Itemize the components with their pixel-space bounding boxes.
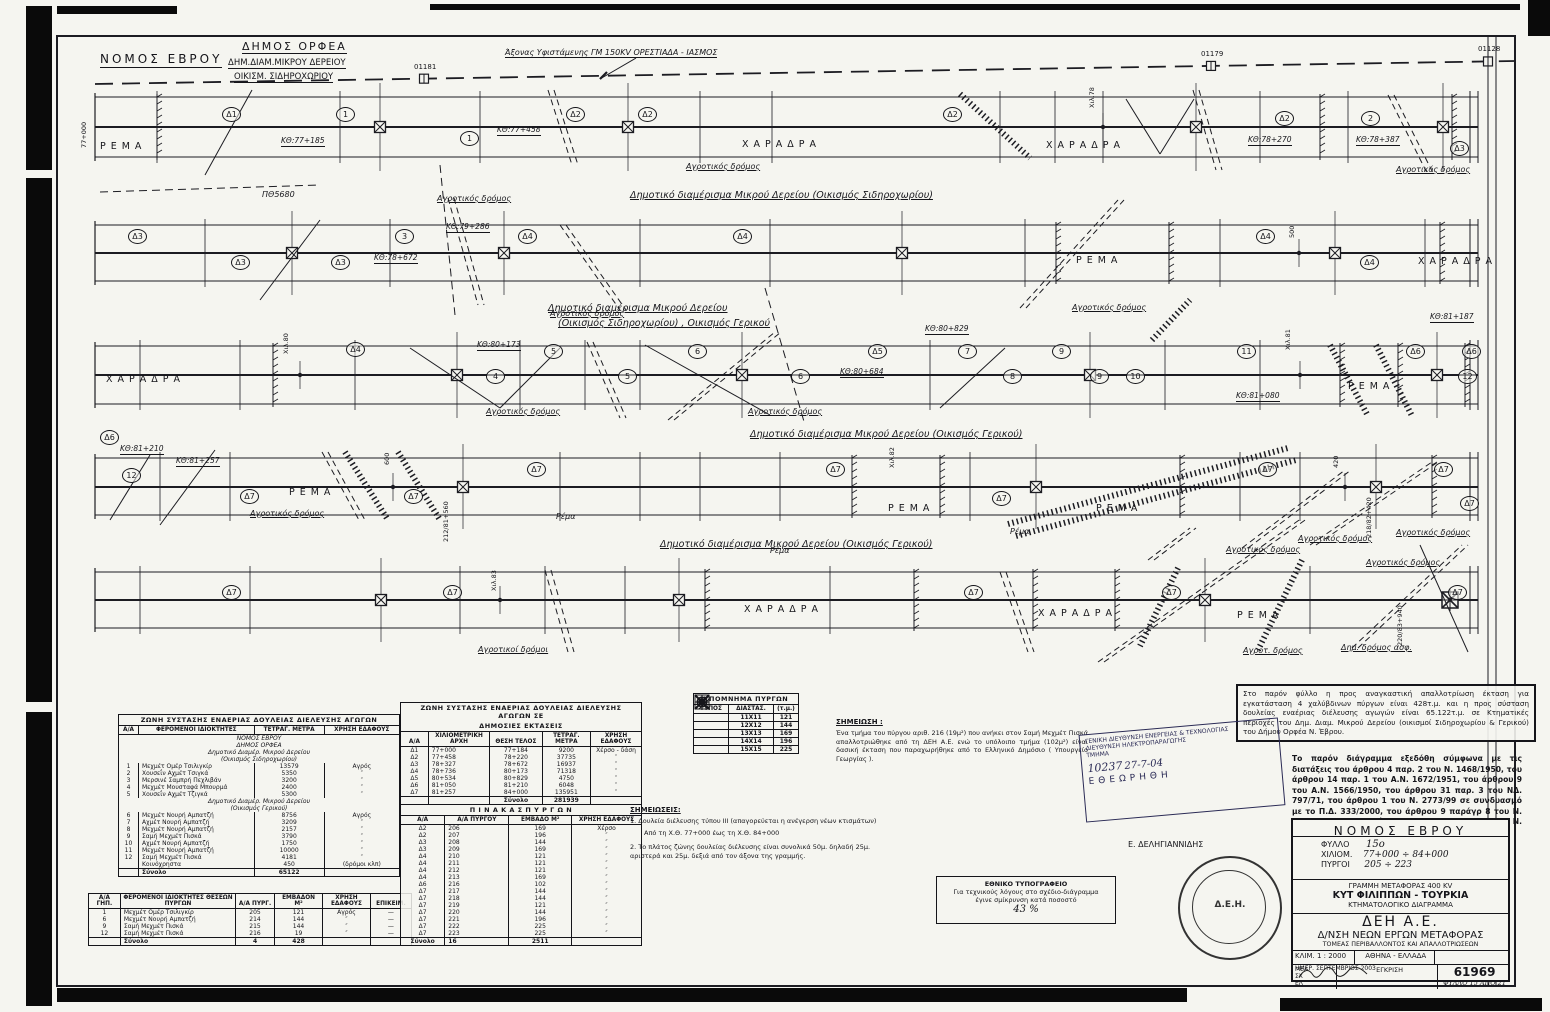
legend-area: 225	[774, 746, 799, 754]
table-cell: Δ3	[401, 761, 428, 768]
table-cell: 77+184	[490, 747, 542, 755]
table-cell: 221	[445, 916, 509, 923]
section-header-cell: (Οικισμός Σιδηροχωρίου)	[119, 756, 399, 763]
table-row: Δ4212121″	[401, 867, 641, 874]
tower-number-label: 1	[336, 107, 355, 122]
table-cell: 16	[445, 938, 509, 946]
printing-percent: 43 %	[937, 904, 1115, 915]
tower-number-label: 6	[688, 344, 707, 359]
table-cell: Σύνολο	[401, 938, 445, 946]
table-cell: 210	[445, 853, 509, 860]
table-cell: ″	[591, 775, 641, 782]
column-header: Α/Α	[119, 726, 139, 735]
table-cell: ″	[324, 826, 399, 833]
table-row: 5Χουσεΐν Αχμέτ Τζιγκά5300″	[119, 791, 399, 798]
legend-area: 121	[774, 714, 799, 722]
table-row: (Οικισμός Σιδηροχωρίου)	[119, 756, 399, 763]
tower-number-label: 4	[486, 369, 505, 384]
table-cell: 213	[445, 874, 509, 881]
note-item-2: 2. Το πλάτος ζώνης δουλείας διέλευσης εί…	[630, 843, 902, 861]
legend-row: 14X14196	[694, 738, 798, 746]
table-cell: Σαμή Μεχμέτ Πισκά	[120, 930, 235, 938]
station-label: ΚΘ:79+286	[446, 222, 490, 233]
printing-office-box: ΕΘΝΙΚΟ ΤΥΠΟΓΡΑΦΕΙΟ Για τεχνικούς λόγους …	[936, 876, 1116, 924]
settlement-title: ΟΙΚΙΣΜ. ΣΙΔΗΡΟΧΩΡΙΟΥ	[234, 72, 333, 83]
table-cell: Αγρός	[324, 812, 399, 819]
tower-number-label: Δ4	[346, 342, 365, 357]
table-row: Δ4213169″	[401, 874, 641, 881]
table-cell: Μεχμέτ Μουσταφά Μπουρμά	[139, 784, 255, 791]
stamp-date: 27-7-04	[1124, 758, 1163, 772]
tower-number-label: Δ7	[1448, 585, 1467, 600]
table-cell: 71318	[542, 768, 590, 775]
tower-number-label: Δ7	[222, 585, 241, 600]
table-row: 1Μεχμέτ Ομέρ Τσιλιγκίρ13579Αγρός	[119, 763, 399, 770]
table-cell: Δ7	[401, 902, 445, 909]
table-cell: Μεχμέτ Νουρή Αμπατζή	[120, 916, 235, 923]
table-cell: ″	[324, 819, 399, 826]
table-cell: Δ4	[401, 853, 445, 860]
table-row: Δ7220144″	[401, 909, 641, 916]
table-cell: ″	[324, 854, 399, 861]
table-cell: ″	[591, 782, 641, 789]
table-cell: 211	[445, 860, 509, 867]
column-header: Α/Α	[401, 732, 428, 747]
table-cell	[119, 861, 139, 869]
table-cell: 144	[509, 909, 572, 916]
table-cell: Δ2	[401, 825, 445, 833]
table-row: 4Μεχμέτ Μουσταφά Μπουρμά2400″	[119, 784, 399, 791]
tb-sheet-value: 15ο	[1366, 839, 1385, 850]
legend-dim: 14X14	[729, 738, 774, 746]
table-cell: 208	[445, 839, 509, 846]
table-row: 9Σαμή Μεχμέτ Πισκά215144″—	[89, 923, 411, 930]
table-row: 10Αχμέτ Νουρή Αμπατζή1750″	[119, 840, 399, 847]
note-item-1: 1. Δουλεία διέλευσης τύπου ΙΙΙ (απαγορεύ…	[630, 817, 902, 826]
table-cell: 11	[119, 847, 139, 854]
table-row: Δ378+32778+67216937″	[401, 761, 641, 768]
table-row: Σύνολο65122	[119, 869, 399, 877]
table-cell: 196	[509, 832, 572, 839]
column-header: ΤΕΤΡΑΓ. ΜΕΤΡΑ	[542, 732, 590, 747]
tb-towers-label: ΠΥΡΓΟΙ	[1321, 860, 1350, 869]
tower-number-label: 5	[618, 369, 637, 384]
station-label: ΚΘ:80+684	[840, 367, 884, 378]
table-row: Δ7219121″	[401, 902, 641, 909]
tower-number-label: Δ4	[518, 229, 537, 244]
table-cell: (δρόμοι κλπ)	[324, 861, 399, 869]
table-cell: 214	[236, 916, 275, 923]
table-cell: Αγρός	[323, 909, 371, 917]
tower-number-label: 7	[958, 344, 977, 359]
table-cell: 80+173	[490, 768, 542, 775]
column-header: ΧΡΗΣΗ ΕΔΑΦΟΥΣ	[591, 732, 641, 747]
tower-number-label: 10	[1126, 369, 1145, 384]
table-row: 1Μεχμέτ Ομέρ Τσιλιγκίρ205121Αγρός—	[89, 909, 411, 917]
approval-signature	[1293, 965, 1383, 981]
table-row: Δημοτικό Διαμέρ. Μικρού Δερείου	[119, 749, 399, 756]
table-cell: ″	[572, 895, 641, 902]
table-row: Δ7222225″	[401, 923, 641, 930]
tower-number-label: Δ3	[231, 255, 250, 270]
notes-block: ΣΗΜΕΙΩΣΕΙΣ: 1. Δουλεία διέλευσης τύπου Ι…	[630, 806, 902, 861]
km-marker-label: 420	[1332, 456, 1340, 468]
table-row: ΔΗΜΟΣ ΟΡΦΕΑ	[119, 742, 399, 749]
table-cell: 3209	[254, 819, 324, 826]
office-stamp: ΓΕΝΙΚΗ ΔΙΕΥΘΥΝΣΗ ΕΝΕΡΓΕΙΑΣ & ΤΕΧΝΟΛΟΓΙΑΣ…	[1079, 717, 1286, 822]
table-cell: 5300	[254, 791, 324, 798]
legend-area: 169	[774, 730, 799, 738]
table-cell: 121	[274, 909, 322, 917]
tower-type-icon	[694, 694, 710, 710]
tower-number-label: 12	[122, 468, 141, 483]
tower-number-label: 9	[1052, 344, 1071, 359]
area-header: Δημοτικό διαμέρισμα Μικρού Δερείου (Οικι…	[660, 539, 933, 550]
tower-number-label: 1	[460, 131, 479, 146]
road-label: Αγροτικός δρόμος	[486, 407, 560, 416]
table-cell	[572, 938, 641, 946]
table-cell: Δ1	[401, 747, 428, 755]
tb-division: Δ/ΝΣΗ ΝΕΩΝ ΕΡΓΩΝ ΜΕΤΑΦΟΡΑΣ	[1293, 930, 1508, 941]
table-cell: Σύνολο	[120, 938, 235, 946]
table-cell	[591, 797, 641, 805]
table-cell: ″	[572, 888, 641, 895]
table-cell	[401, 797, 428, 805]
note-item-1b: Από τη Χ.Θ. 77+000 έως τη Χ.Θ. 84+000	[644, 829, 902, 838]
feature-label: Ρέμα	[1010, 527, 1030, 536]
table-cell: Σαμή Μεχμέτ Πισκά	[139, 833, 255, 840]
tower-number-label: Δ7	[404, 489, 423, 504]
km-marker-label: Χιλ.81	[1284, 329, 1292, 350]
tower-number-label: 12	[1458, 369, 1477, 384]
area-header: Δημοτικό διαμέρισμα Μικρού Δερείου (Οικι…	[750, 429, 1023, 440]
terrain-label: ΡΕΜΑ	[1096, 503, 1142, 514]
table-row: Δ2206169Χέρσο	[401, 825, 641, 833]
tb-scale-label: ΚΛΙΜ.	[1295, 952, 1315, 960]
tower-number-label: Δ2	[566, 107, 585, 122]
table-cell: ″	[591, 789, 641, 797]
table-cell: 169	[509, 874, 572, 881]
tb-company: ΔΕΗ Α.Ε.	[1293, 914, 1508, 930]
table-row: Δ478+73680+17371318″	[401, 768, 641, 775]
table-cell: 6	[89, 916, 120, 923]
table-cell: 281939	[542, 797, 590, 805]
road-label: Αγροτικός δρόμος	[1298, 534, 1372, 543]
table-cell: 225	[509, 930, 572, 938]
tower-number-label: 3	[395, 229, 414, 244]
station-label: ΚΘ:81+187	[1430, 312, 1474, 323]
existing-line-label: Άξονας Υφιστάμενης ΓΜ 150KV ΟΡΕΣΤΙΑΔΑ - …	[505, 48, 717, 58]
km-marker-label: 600	[383, 453, 391, 465]
table-cell: 196	[509, 916, 572, 923]
table-cell: 6048	[542, 782, 590, 789]
tb-km-value: 77+000 ÷ 84+000	[1363, 850, 1449, 860]
table-row: Κοινόχρηστα450(δρόμοι κλπ)	[119, 861, 399, 869]
station-label: ΚΘ:77+185	[281, 136, 325, 147]
table-cell: 220	[445, 909, 509, 916]
area-header: Δημοτικό διαμέρισμα Μικρού Δερείου	[548, 303, 728, 314]
table-cell: 5350	[254, 770, 324, 777]
table-cell: 212	[445, 867, 509, 874]
table-cell: Δ2	[401, 754, 428, 761]
table-cell: Χουσεΐν Αχμέτ Τσιγκά	[139, 770, 255, 777]
column-header: ΦΕΡΟΜΕΝΟΙ ΙΔΙΟΚΤΗΤΕΣ	[139, 726, 255, 735]
table-cell: 2511	[509, 938, 572, 946]
table-cell: ″	[572, 916, 641, 923]
tower-number-label: Δ6	[100, 430, 119, 445]
table-cell: 78+672	[490, 761, 542, 768]
terrain-label: ΧΑΡΑΔΡΑ	[1418, 256, 1497, 267]
terrain-label: ΡΕΜΑ	[1237, 610, 1283, 621]
table-cell: ″	[591, 768, 641, 775]
station-label: ΚΘ:80+829	[925, 324, 969, 335]
legend-area: 196	[774, 738, 799, 746]
table-row: Σύνολο4428	[89, 938, 411, 946]
table-cell: ″	[572, 923, 641, 930]
area-header: (Οικισμός Σιδηροχωρίου) , Οικισμός Γερικ…	[558, 318, 770, 329]
terrain-label: ΡΕΜΑ	[888, 503, 934, 514]
printing-line2: Για τεχνικούς λόγους στο σχέδιο-διάγραμμ…	[937, 888, 1115, 896]
table-cell: Δ2	[401, 832, 445, 839]
feature-label: ΠΘ5680	[262, 190, 295, 199]
tower-number-label: 6	[791, 369, 810, 384]
table-cell: ″	[324, 791, 399, 798]
table-cell: ″	[323, 923, 371, 930]
table-cell: Αγρός	[324, 763, 399, 770]
table-cell: 19	[274, 930, 322, 938]
km-marker-label: 212/81+560	[442, 501, 450, 542]
table-row: Δ177+00077+1849200Χέρσο - δάση	[401, 747, 641, 755]
table-cell: ″	[572, 902, 641, 909]
table-cell: 217	[445, 888, 509, 895]
table-cell: Δ7	[401, 923, 445, 930]
tower-number-label: Δ2	[943, 107, 962, 122]
legend-row: 12X12144	[694, 722, 798, 730]
tb-role-3: ΕΛ	[1295, 980, 1303, 987]
table-row: Σύνολο281939	[401, 797, 641, 805]
private-towers-table: Α/Α ΓΗΠ.ΦΕΡΟΜΕΝΟΙ ΙΔΙΟΚΤΗΤΕΣ ΘΕΣΕΩΝ ΠΥΡΓ…	[88, 893, 412, 946]
section-header-cell: Δημοτικό Διαμέρ. Μικρού Δερείου	[119, 798, 399, 805]
table-cell: ″	[323, 916, 371, 923]
table-cell: Δ7	[401, 916, 445, 923]
table-row: Δημοτικό Διαμέρ. Μικρού Δερείου	[119, 798, 399, 805]
table-row: Δ7223225″	[401, 930, 641, 938]
table-row: Δ7217144″	[401, 888, 641, 895]
table-cell: ″	[324, 784, 399, 791]
km-marker-label: Χιλ.78	[1088, 87, 1096, 108]
table-cell: Μεχμέτ Νουρή Αμπατζή	[139, 847, 255, 854]
table-cell	[428, 797, 489, 805]
km-marker-label: Χιλ.83	[490, 570, 498, 591]
table-cell: 1	[89, 909, 120, 917]
section-header-cell: Δημοτικό Διαμέρ. Μικρού Δερείου	[119, 749, 399, 756]
road-label: Αγροτικός δρόμος	[748, 407, 822, 416]
district-title: ΔΗΜ.ΔΙΑΜ.ΜΙΚΡΟΥ ΔΕΡΕΙΟΥ	[228, 58, 346, 69]
column-header: ΧΡΗΣΗ ΕΔΑΦΟΥΣ	[323, 894, 371, 909]
terrain-label: ΧΑΡΑΔΡΑ	[742, 139, 821, 150]
table-cell: Δ7	[401, 789, 428, 797]
terrain-label: ΡΕΜΑ	[289, 487, 335, 498]
legend-dim: 12X12	[729, 722, 774, 730]
table-cell: 223	[445, 930, 509, 938]
station-label: ΚΘ:81+257	[176, 456, 220, 467]
table-cell: 16937	[542, 761, 590, 768]
column-header: ΧΙΛΙΟΜΕΤΡΙΚΗ ΑΡΧΗ	[428, 732, 489, 747]
table-cell: 8	[119, 826, 139, 833]
table-cell: Σαμή Μεχμέτ Πισκά	[120, 923, 235, 930]
table-cell: Δ3	[401, 846, 445, 853]
table-cell: 13579	[254, 763, 324, 770]
tb-sheet-of: ΦΥΛΛΟ 15 ΑΠΟ 21	[1443, 979, 1506, 987]
station-label: ΚΘ:81+080	[1236, 391, 1280, 402]
prefecture-title: ΝΟΜΟΣ ΕΒΡΟΥ	[100, 52, 222, 68]
table-row: 6Μεχμέτ Νουρή Αμπατζή214144″—	[89, 916, 411, 923]
table-cell: 206	[445, 825, 509, 833]
table-cell: Χέρσο - δάση	[591, 747, 641, 755]
feature-label: Ρέμα	[556, 512, 576, 521]
table-cell: Χουσεΐν Αχμέτ Τζιγκά	[139, 791, 255, 798]
table-cell: 37735	[542, 754, 590, 761]
table-cell: 216	[236, 930, 275, 938]
table-cell: 2157	[254, 826, 324, 833]
area-header: Δημοτικό διαμέρισμα Μικρού Δερείου (Οικι…	[630, 190, 933, 201]
legend-dim: 15X15	[729, 746, 774, 754]
tb-diagram-type: ΚΤΗΜΑΤΟΛΟΓΙΚΟ ΔΙΑΓΡΑΜΜΑ	[1293, 901, 1508, 909]
terrain-label: ΧΑΡΑΔΡΑ	[744, 604, 823, 615]
table-row: 6Μεχμέτ Νουρή Αμπατζή8756Αγρός	[119, 812, 399, 819]
terrain-label: ΧΑΡΑΔΡΑ	[1046, 140, 1125, 151]
table-cell	[324, 869, 399, 877]
table-cell: Μεχμέτ Ομέρ Τσιλιγκίρ	[120, 909, 235, 917]
table-cell: 4	[119, 784, 139, 791]
table-cell: Αχμέτ Νουρή Αμπατζή	[139, 819, 255, 826]
table-cell: 65122	[254, 869, 324, 877]
table-cell: 428	[274, 938, 322, 946]
table-row: Δ7221196″	[401, 916, 641, 923]
table-cell: ″	[324, 833, 399, 840]
table-row: Δ3208144″	[401, 839, 641, 846]
table-cell: 450	[254, 861, 324, 869]
table-title: ΖΩΝΗ ΣΥΣΤΑΣΗΣ ΕΝΑΕΡΙΑΣ ΔΟΥΛΕΙΑΣ ΔΙΕΛΕΥΣΗ…	[401, 703, 641, 721]
table-cell: 3790	[254, 833, 324, 840]
tower-number-label: Δ4	[733, 229, 752, 244]
table-row: Δ7218144″	[401, 895, 641, 902]
terrain-label: ΡΕΜΑ	[1348, 381, 1394, 392]
tower-number-label: Δ2	[638, 107, 657, 122]
table-cell: ″	[572, 930, 641, 938]
table-cell: Δ6	[401, 782, 428, 789]
table-cell: Δ4	[401, 867, 445, 874]
road-label: Αγροτικός δρόμος	[437, 194, 511, 203]
column-header: Α/Α ΠΥΡΓ.	[236, 894, 275, 909]
table-cell: Δ7	[401, 895, 445, 902]
table-cell: Μερσινέ Σαμπρή Πεχλιβάν	[139, 777, 255, 784]
table-cell: 4181	[254, 854, 324, 861]
tb-region: ΝΟΜΟΣ ΕΒΡΟΥ	[1334, 824, 1467, 838]
section-header-cell: ΝΟΜΟΣ ΕΒΡΟΥ	[119, 735, 399, 743]
column-header: ΧΡΗΣΗ ΕΔΑΦΟΥΣ	[324, 726, 399, 735]
table-cell: 1750	[254, 840, 324, 847]
tower-number-label: Δ7	[443, 585, 462, 600]
tb-location: ΑΘΗΝΑ - ΕΛΛΑΔΑ	[1357, 951, 1435, 964]
tower-number-label: Δ7	[992, 491, 1011, 506]
pylon-marker-label: 01128	[1478, 45, 1500, 53]
road-label: Αγροτικός δρόμος	[250, 509, 324, 518]
pylon-marker-label: 01181	[414, 63, 436, 71]
table-cell: ″	[324, 777, 399, 784]
table-cell: Αχμέτ Νουρή Αμπατζή	[139, 840, 255, 847]
tower-number-label: Δ7	[1434, 462, 1453, 477]
table-cell: 9200	[542, 747, 590, 755]
tower-number-label: Δ7	[964, 585, 983, 600]
table-cell: 1	[119, 763, 139, 770]
legend-area: 144	[774, 722, 799, 730]
terrain-label: ΡΕΜΑ	[100, 141, 146, 152]
terrain-label: ΧΑΡΑΔΡΑ	[106, 374, 185, 385]
legend-row: 13X13169	[694, 730, 798, 738]
title-block: ΝΟΜΟΣ ΕΒΡΟΥ ΦΥΛΛΟ 15ο ΧΙΛΙΟΜ. 77+000 ÷ 8…	[1291, 818, 1510, 982]
tb-drawing-number: 61969	[1443, 965, 1506, 979]
cadastral-drawing-sheet: { "page_header": { "prefecture": "ΝΟΜΟΣ …	[0, 0, 1550, 1012]
table-cell: 209	[445, 846, 509, 853]
legend-col-area: (τ.μ.)	[774, 705, 799, 714]
table-cell: 7	[119, 819, 139, 826]
table-cell: Δ7	[401, 909, 445, 916]
table-row: Δ4210121″	[401, 853, 641, 860]
table-row: Σύνολο162511	[401, 938, 641, 946]
section-header-cell: ΔΗΜΟΣ ΟΡΦΕΑ	[119, 742, 399, 749]
pylon-marker-label: 01179	[1201, 50, 1223, 58]
table-cell: 205	[236, 909, 275, 917]
table-cell	[89, 938, 120, 946]
road-label: Αγροτικός δρόμος	[1072, 303, 1146, 312]
table-cell: 80+829	[490, 775, 542, 782]
table-cell: 10	[119, 840, 139, 847]
tb-sector: ΤΟΜΕΑΣ ΠΕΡΙΒΑΛΛΟΝΤΟΣ ΚΑΙ ΑΠΑΛΛΟΤΡΙΩΣΕΩΝ	[1293, 941, 1508, 948]
column-header: ΤΕΤΡΑΓ. ΜΕΤΡΑ	[254, 726, 324, 735]
legend-dim: 11X11	[729, 714, 774, 722]
table-cell: 3	[119, 777, 139, 784]
road-label: Αγροτικός δρόμος	[1366, 558, 1440, 567]
table-row: Δ277+45878+22037735″	[401, 754, 641, 761]
table-cell: ″	[572, 860, 641, 867]
signer-name: Ε. ΔΕΛΗΓΙΑΝΝΙΔΗΣ	[1128, 840, 1203, 849]
column-header: Α/Α ΓΗΠ.	[89, 894, 120, 909]
table-cell: Δ4	[401, 860, 445, 867]
table-row: 12Σαμή Μεχμέτ Πισκά21619″—	[89, 930, 411, 938]
column-header: ΦΕΡΟΜΕΝΟΙ ΙΔΙΟΚΤΗΤΕΣ ΘΕΣΕΩΝ ΠΥΡΓΩΝ	[120, 894, 235, 909]
column-header: ΕΜΒΑΔΟΝ Μ²	[274, 894, 322, 909]
section-header-cell: (Οικισμός Γερικού)	[119, 805, 399, 812]
table-cell: ″	[324, 840, 399, 847]
station-label: ΚΘ:81+210	[120, 444, 164, 455]
table-cell: 5	[119, 791, 139, 798]
tower-number-label: Δ7	[1162, 585, 1181, 600]
station-label: ΚΘ:77+458	[497, 125, 541, 136]
table-cell: 222	[445, 923, 509, 930]
table-cell: 81+050	[428, 782, 489, 789]
legend-dim: 13X13	[729, 730, 774, 738]
table-cell: 121	[509, 860, 572, 867]
table-row: 7Αχμέτ Νουρή Αμπατζή3209″	[119, 819, 399, 826]
tower-number-label: 11	[1237, 344, 1256, 359]
terrain-label: ΡΕΜΑ	[1076, 255, 1122, 266]
table-cell: 169	[509, 825, 572, 833]
tower-number-label: 5	[544, 344, 563, 359]
table-row: 8Μεχμέτ Νουρή Αμπατζή2157″	[119, 826, 399, 833]
table-row: Δ3209169″	[401, 846, 641, 853]
tb-km-label: ΧΙΛΙΟΜ.	[1321, 850, 1352, 859]
